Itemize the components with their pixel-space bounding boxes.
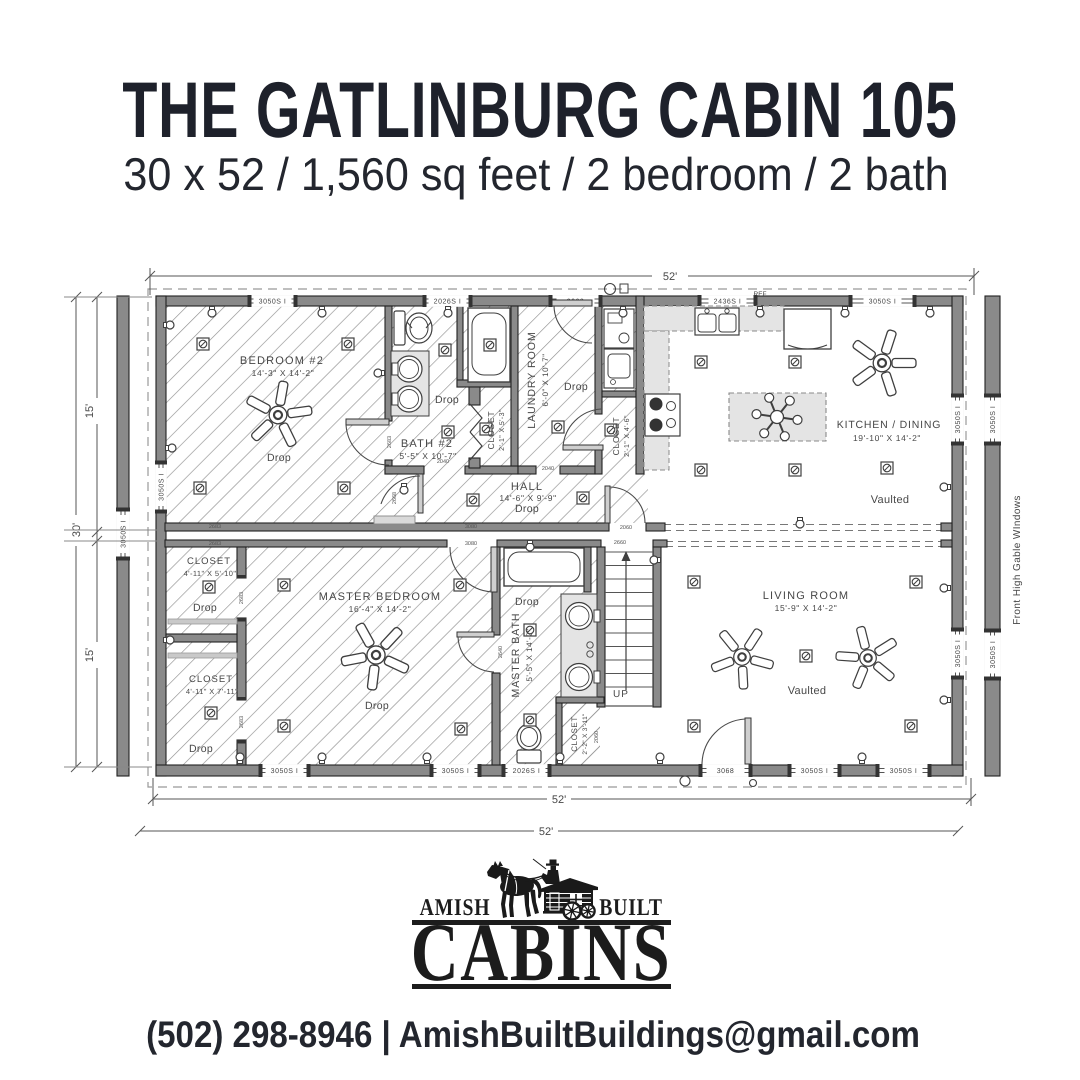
svg-text:2683: 2683 <box>387 436 393 448</box>
svg-text:BEDROOM #2: BEDROOM #2 <box>240 355 324 367</box>
svg-text:52': 52' <box>663 271 677 283</box>
svg-text:2026S I: 2026S I <box>513 768 541 775</box>
svg-text:Drop: Drop <box>515 503 539 515</box>
svg-text:LIVING ROOM: LIVING ROOM <box>763 590 850 602</box>
svg-text:3080: 3080 <box>465 524 477 530</box>
svg-text:Drop: Drop <box>564 381 588 393</box>
svg-text:52': 52' <box>539 826 553 838</box>
svg-text:15': 15' <box>84 404 96 418</box>
svg-text:UP: UP <box>613 689 629 700</box>
svg-text:3050S I: 3050S I <box>271 768 299 775</box>
svg-text:19'-10" X 14'-2": 19'-10" X 14'-2" <box>853 433 921 443</box>
svg-text:14'-3" X 14'-2": 14'-3" X 14'-2" <box>252 368 315 378</box>
svg-text:2683: 2683 <box>239 592 245 604</box>
svg-text:3050S I: 3050S I <box>890 768 918 775</box>
svg-text:CLOSET: CLOSET <box>570 716 579 752</box>
svg-text:Drop: Drop <box>515 596 539 608</box>
svg-text:6'-0" X 10'-7": 6'-0" X 10'-7" <box>541 353 550 406</box>
svg-text:3050S I: 3050S I <box>121 520 128 548</box>
svg-text:(502) 298-8946 | AmishBuiltBui: (502) 298-8946 | AmishBuiltBuildings@gma… <box>146 1014 920 1056</box>
svg-text:15'-9" X 14'-2": 15'-9" X 14'-2" <box>775 603 838 613</box>
svg-text:Drop: Drop <box>193 602 217 614</box>
svg-text:14'-6" X 9'-9": 14'-6" X 9'-9" <box>499 493 556 503</box>
svg-text:3050S I: 3050S I <box>442 768 470 775</box>
svg-text:3050S I: 3050S I <box>259 299 287 306</box>
svg-text:HALL: HALL <box>511 481 543 493</box>
svg-text:2026S I: 2026S I <box>434 299 462 306</box>
svg-text:CLOSET: CLOSET <box>611 417 621 456</box>
svg-text:3050S I: 3050S I <box>801 768 829 775</box>
svg-text:30 x 52 / 1,560 sq feet / 2 be: 30 x 52 / 1,560 sq feet / 2 bedroom / 2 … <box>123 148 948 200</box>
svg-text:3050S I: 3050S I <box>955 640 962 668</box>
svg-text:2436S I: 2436S I <box>714 299 742 306</box>
svg-text:5'-5" X 14'-2": 5'-5" X 14'-2" <box>525 628 534 681</box>
svg-text:MASTER BEDROOM: MASTER BEDROOM <box>319 591 442 603</box>
svg-text:2683: 2683 <box>209 524 221 530</box>
svg-text:Drop: Drop <box>435 394 459 406</box>
svg-text:2060: 2060 <box>620 525 632 531</box>
svg-text:3050S I: 3050S I <box>990 406 997 434</box>
svg-text:4'-11" X 7'-11": 4'-11" X 7'-11" <box>186 687 238 696</box>
svg-text:Drop: Drop <box>267 452 291 464</box>
svg-text:THE GATLINBURG CABIN 105: THE GATLINBURG CABIN 105 <box>122 65 957 154</box>
svg-text:Vaulted: Vaulted <box>871 494 910 506</box>
svg-text:2668: 2668 <box>392 492 398 504</box>
svg-text:2'-1" X 4'-6": 2'-1" X 4'-6" <box>624 415 631 457</box>
svg-text:Vaulted: Vaulted <box>788 685 827 697</box>
svg-text:3050S I: 3050S I <box>955 406 962 434</box>
svg-text:2'-2" X 3'-11": 2'-2" X 3'-11" <box>582 713 589 755</box>
svg-text:2040: 2040 <box>437 459 449 465</box>
svg-text:3050S I: 3050S I <box>159 473 166 501</box>
svg-text:15': 15' <box>84 648 96 662</box>
svg-text:BATH #2: BATH #2 <box>401 438 453 450</box>
svg-text:CLOSET: CLOSET <box>187 556 231 567</box>
svg-text:2040: 2040 <box>542 466 554 472</box>
svg-text:52': 52' <box>552 794 566 806</box>
svg-text:2683: 2683 <box>239 716 245 728</box>
svg-text:16'-4" X 14'-2": 16'-4" X 14'-2" <box>349 604 412 614</box>
svg-text:CLOSET: CLOSET <box>486 411 496 450</box>
svg-text:2640: 2640 <box>498 646 504 658</box>
svg-text:Drop: Drop <box>189 743 213 755</box>
svg-text:KITCHEN / DINING: KITCHEN / DINING <box>837 419 941 431</box>
svg-text:3050S I: 3050S I <box>869 299 897 306</box>
svg-text:LAUNDRY ROOM: LAUNDRY ROOM <box>526 331 538 428</box>
svg-text:3068: 3068 <box>717 768 735 775</box>
svg-text:3080: 3080 <box>465 541 477 547</box>
svg-text:REF: REF <box>754 291 767 298</box>
svg-text:3050S I: 3050S I <box>990 641 997 669</box>
svg-text:2683: 2683 <box>209 541 221 547</box>
svg-text:2660: 2660 <box>614 540 626 546</box>
svg-text:2'-1" X 5'-3": 2'-1" X 5'-3" <box>499 409 506 451</box>
svg-text:4'-11" X 5'-10": 4'-11" X 5'-10" <box>184 569 237 578</box>
svg-text:2060: 2060 <box>594 731 600 743</box>
svg-text:Front High Gable WIndows: Front High Gable WIndows <box>1012 495 1023 625</box>
svg-text:Drop: Drop <box>365 700 389 712</box>
svg-text:CLOSET: CLOSET <box>189 674 233 685</box>
svg-text:MASTER BATH: MASTER BATH <box>510 613 522 698</box>
